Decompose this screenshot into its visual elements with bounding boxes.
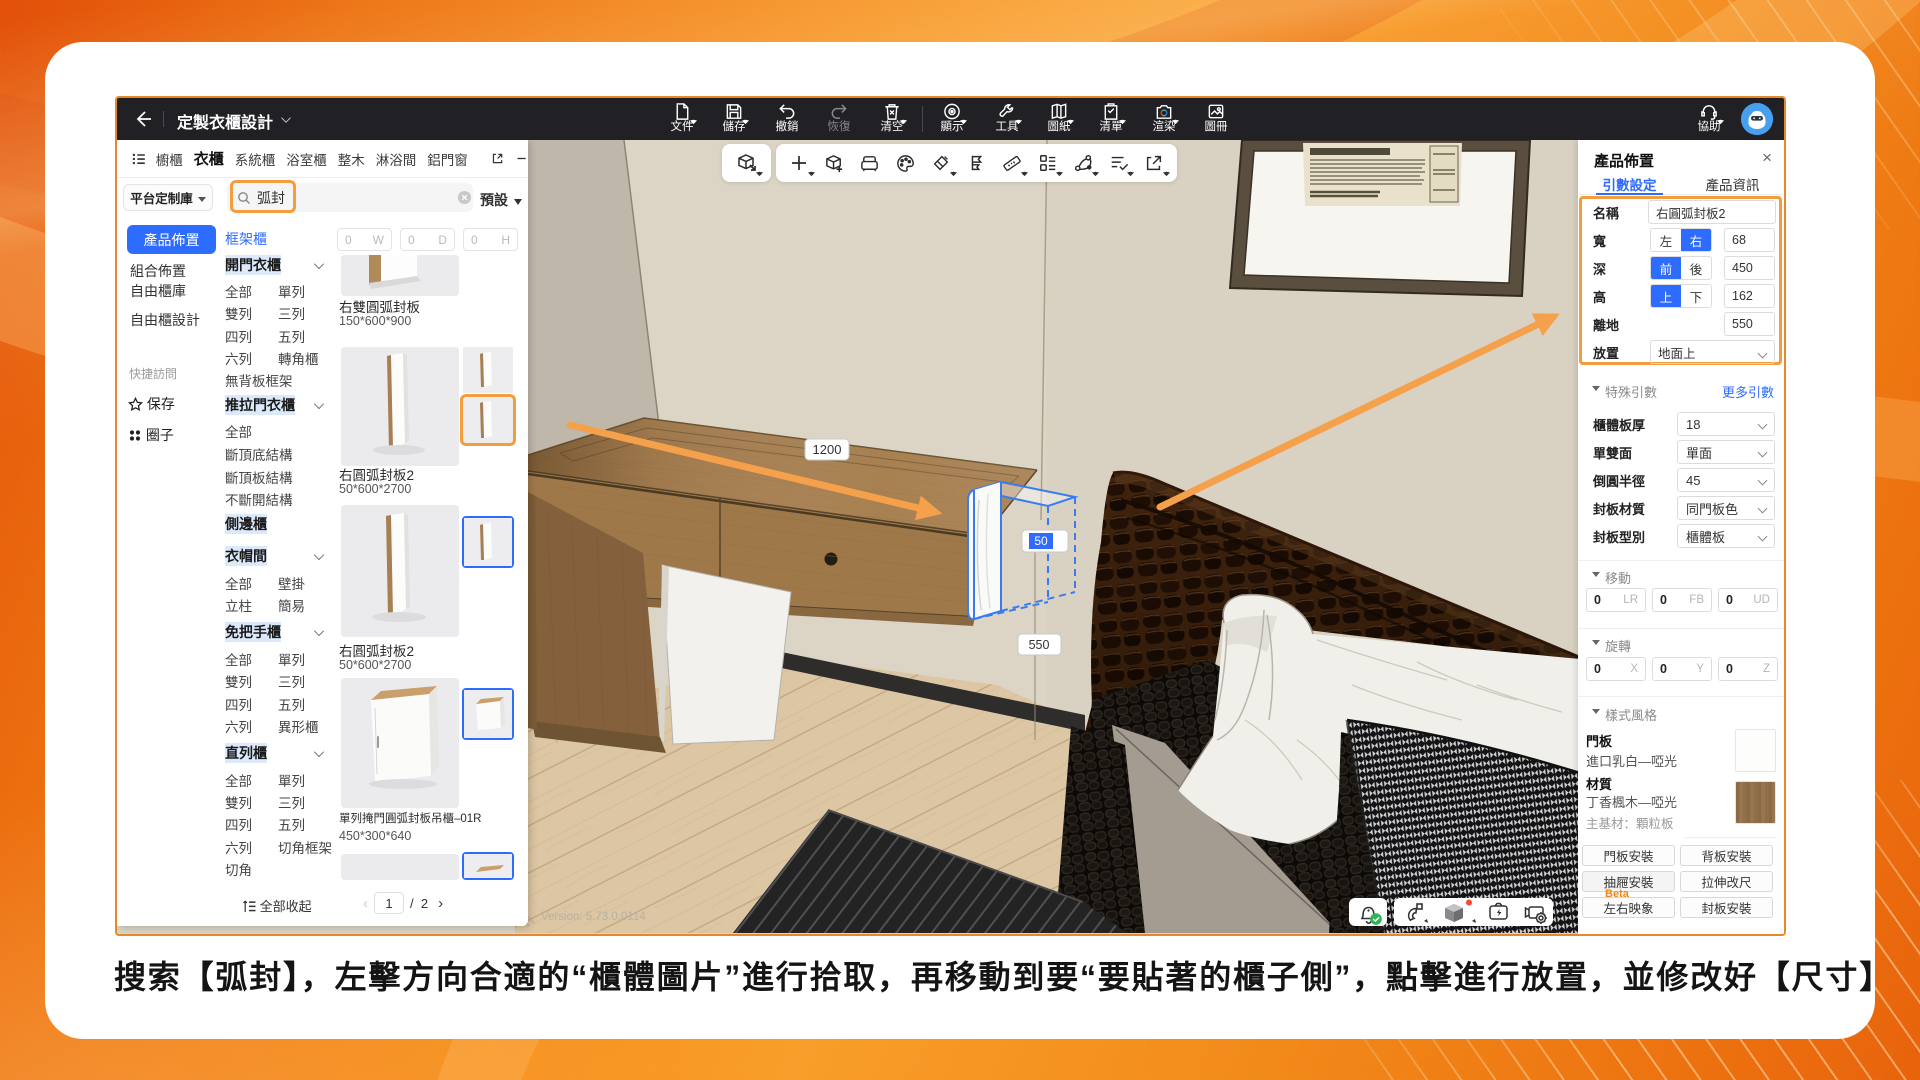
svg-text:550: 550 [1029,638,1050,652]
svg-text:Version: 5.73.0.0114: Version: 5.73.0.0114 [541,911,646,923]
svg-text:50: 50 [1034,534,1048,548]
svg-text:1200: 1200 [813,442,842,457]
